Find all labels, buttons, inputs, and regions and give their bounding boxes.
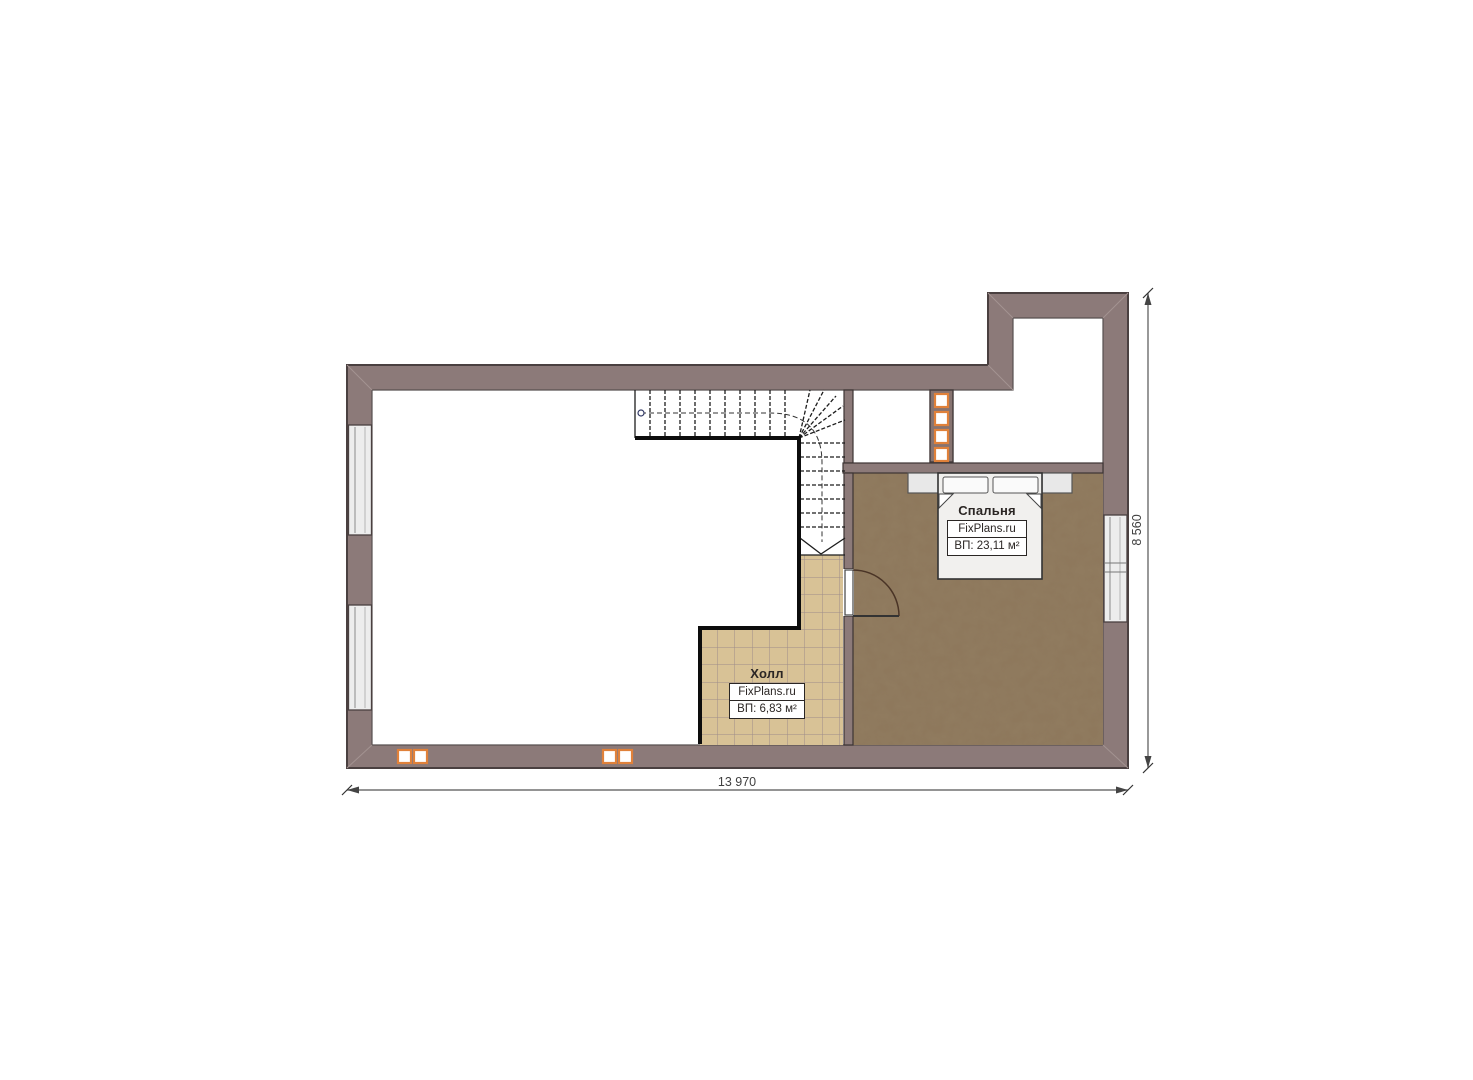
door-leaf-closed bbox=[845, 570, 853, 615]
nightstand-left bbox=[908, 473, 940, 493]
pillow-right bbox=[993, 477, 1038, 493]
floor-plan-drawing bbox=[0, 0, 1473, 1080]
hall-watermark: FixPlans.ru bbox=[729, 683, 805, 702]
wall-bedroom-top bbox=[843, 463, 1103, 473]
window-left-lower bbox=[349, 605, 372, 710]
hall-name: Холл bbox=[729, 666, 805, 681]
dimension-width-value: 13 970 bbox=[687, 775, 787, 789]
bedroom-label: Спальня FixPlans.ru ВП: 23,11 м² bbox=[947, 503, 1027, 556]
hall-area-label: ВП: 6,83 м² bbox=[729, 700, 805, 719]
nightstand-right bbox=[1042, 473, 1072, 493]
hall-label: Холл FixPlans.ru ВП: 6,83 м² bbox=[729, 666, 805, 719]
window-right-bedroom bbox=[1104, 515, 1127, 622]
wall-below-door bbox=[844, 616, 853, 745]
wall-above-door bbox=[844, 473, 853, 569]
wall-stair-bedroom bbox=[844, 390, 853, 463]
dimension-height-value: 8 560 bbox=[1130, 500, 1146, 560]
window-left-upper bbox=[349, 425, 372, 535]
bedroom-name: Спальня bbox=[947, 503, 1027, 518]
floor-plan-page: Спальня FixPlans.ru ВП: 23,11 м² Холл Fi… bbox=[0, 0, 1473, 1080]
stair-start-marker bbox=[638, 410, 644, 416]
pillow-left bbox=[943, 477, 988, 493]
bedroom-watermark: FixPlans.ru bbox=[947, 520, 1027, 539]
chimney-block bbox=[930, 390, 953, 462]
bedroom-area-label: ВП: 23,11 м² bbox=[947, 537, 1027, 556]
